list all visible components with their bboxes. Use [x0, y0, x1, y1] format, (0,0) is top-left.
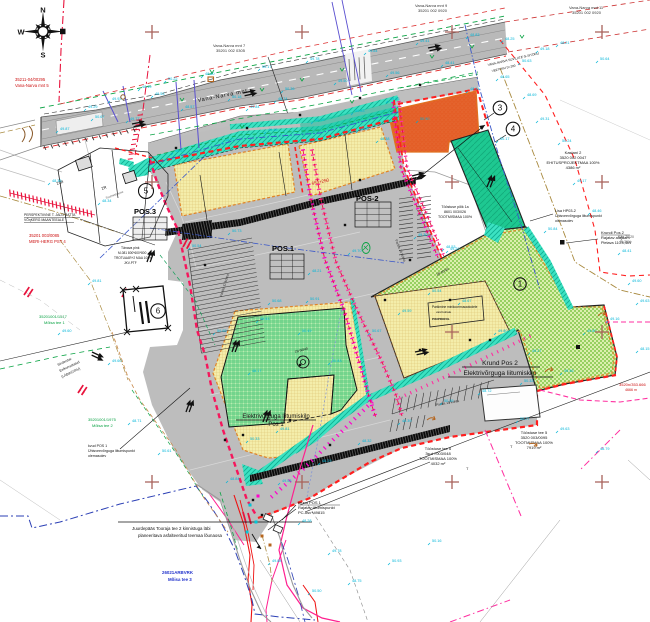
svg-text:50.27: 50.27 [520, 417, 530, 421]
svg-text:48.17: 48.17 [252, 369, 262, 373]
svg-text:50.17: 50.17 [262, 65, 272, 69]
svg-text:TROTUAAR+2 MAA 100%: TROTUAAR+2 MAA 100% [114, 256, 152, 260]
svg-text:48.15: 48.15 [640, 347, 650, 351]
svg-text:50.19: 50.19 [315, 118, 325, 122]
svg-text:50.63: 50.63 [522, 59, 532, 63]
svg-text:50.17: 50.17 [500, 137, 510, 141]
svg-text:49.17: 49.17 [577, 179, 587, 183]
svg-text:6: 6 [156, 307, 161, 316]
svg-text:3: 3 [498, 104, 503, 113]
svg-text:4: 4 [511, 125, 516, 134]
svg-text:PIKIPROFIIL: PIKIPROFIIL [432, 317, 450, 321]
svg-text:35201 002 0920: 35201 002 0920 [418, 8, 448, 13]
svg-text:50.83: 50.83 [332, 359, 342, 363]
svg-text:50.67: 50.67 [95, 115, 105, 119]
svg-text:POS.3: POS.3 [134, 207, 156, 216]
svg-text:50.49: 50.49 [302, 329, 312, 333]
svg-text:49.78: 49.78 [310, 57, 320, 61]
svg-text:49.59: 49.59 [402, 309, 412, 313]
svg-text:49.30: 49.30 [418, 233, 428, 237]
svg-text:49.84: 49.84 [368, 49, 378, 53]
svg-text:Elektrivõrguga liitumiskilp: Elektrivõrguga liitumiskilp [242, 414, 310, 420]
svg-text:POS.1: POS.1 [272, 244, 294, 253]
svg-text:49.80: 49.80 [498, 329, 508, 333]
svg-text:Mõisa tee 2: Mõisa tee 2 [92, 423, 113, 428]
svg-text:PERSPEKTIIVNE T. JALG RATTA: PERSPEKTIIVNE T. JALG RATTA [24, 213, 76, 217]
svg-text:49.87: 49.87 [60, 127, 70, 131]
svg-text:48.79: 48.79 [600, 447, 610, 451]
svg-text:50.64: 50.64 [600, 57, 610, 61]
svg-text:50.22: 50.22 [168, 77, 178, 81]
svg-text:Juurdepääs Tooraja tee 2 kinni: Juurdepääs Tooraja tee 2 kinnistuga läbi [132, 526, 211, 531]
svg-text:50.54: 50.54 [432, 289, 442, 293]
svg-text:Lisa HP03-2: Lisa HP03-2 [555, 209, 576, 213]
svg-text:MERI-HERG PST 4: MERI-HERG PST 4 [29, 239, 66, 244]
svg-text:35201 002 0305: 35201 002 0305 [216, 48, 246, 53]
svg-text:49.63: 49.63 [560, 427, 570, 431]
svg-text:49.63: 49.63 [640, 299, 650, 303]
svg-text:48.80: 48.80 [205, 72, 215, 76]
svg-text:50.33: 50.33 [524, 379, 534, 383]
svg-text:35201001/1517: 35201001/1517 [39, 314, 68, 319]
svg-text:50.93: 50.93 [392, 559, 402, 563]
svg-text:49.77: 49.77 [130, 117, 140, 121]
svg-text:Pl 39%: Pl 39% [620, 240, 631, 244]
svg-text:48.84: 48.84 [230, 477, 240, 481]
svg-text:50.68: 50.68 [272, 299, 282, 303]
svg-text:50.50: 50.50 [312, 589, 322, 593]
svg-text:48.67: 48.67 [462, 299, 472, 303]
svg-text:49.18: 49.18 [540, 47, 550, 51]
svg-text:49.46: 49.46 [564, 369, 574, 373]
svg-text:olemasolev: olemasolev [555, 219, 573, 223]
svg-text:35211-04/00295: 35211-04/00295 [15, 77, 46, 82]
svg-text:50.67: 50.67 [372, 329, 382, 333]
svg-text:50.24: 50.24 [562, 139, 572, 143]
svg-text:4666 m: 4666 m [625, 388, 637, 392]
svg-text:4032 m²: 4032 m² [431, 461, 446, 466]
svg-text:JKV-PTF: JKV-PTF [124, 261, 137, 265]
svg-text:50.95: 50.95 [217, 329, 227, 333]
svg-text:49.60: 49.60 [632, 279, 642, 283]
svg-text:48.57: 48.57 [185, 105, 195, 109]
svg-text:48.83: 48.83 [260, 317, 270, 321]
svg-text:50.33: 50.33 [250, 437, 260, 441]
svg-text:49.53: 49.53 [155, 92, 165, 96]
svg-text:Krund Pos 2: Krund Pos 2 [482, 360, 518, 367]
svg-text:49.88: 49.88 [272, 559, 282, 563]
svg-text:35201001/1975: 35201001/1975 [88, 417, 117, 422]
svg-text:49.41: 49.41 [420, 39, 430, 43]
svg-text:49.15: 49.15 [268, 128, 278, 132]
svg-text:50.73: 50.73 [232, 229, 242, 233]
svg-text:49.60: 49.60 [112, 359, 122, 363]
svg-text:49.31: 49.31 [540, 117, 550, 121]
svg-text:49.27: 49.27 [532, 349, 542, 353]
svg-text:49.84: 49.84 [250, 105, 260, 109]
svg-text:49.56: 49.56 [390, 71, 400, 75]
svg-text:35201 003/0085: 35201 003/0085 [29, 233, 60, 238]
svg-text:48.53: 48.53 [446, 245, 456, 249]
svg-text:48.72: 48.72 [225, 138, 235, 142]
svg-text:S: S [40, 51, 45, 60]
svg-text:Mõisa tee 3: Mõisa tee 3 [168, 577, 192, 582]
svg-text:Parkimine minikoormusautodele: Parkimine minikoormusautodele [432, 305, 478, 309]
svg-text:48.28: 48.28 [302, 519, 312, 523]
svg-text:vaid kohale: vaid kohale [436, 310, 452, 314]
svg-text:49.53: 49.53 [390, 97, 400, 101]
svg-text:5: 5 [144, 187, 149, 196]
svg-text:POS-2: POS-2 [356, 194, 379, 203]
svg-text:50.90: 50.90 [420, 117, 430, 121]
svg-text:planeeritava asfalteeritud tee: planeeritava asfalteeritud teemaa lõunao… [138, 533, 223, 538]
svg-text:49.16: 49.16 [610, 317, 620, 321]
svg-text:M-081 800*600*800: M-081 800*600*800 [118, 251, 147, 255]
svg-text:48.72: 48.72 [482, 389, 492, 393]
svg-text:48.21: 48.21 [312, 269, 322, 273]
svg-text:Tööstuse põik 1a: Tööstuse põik 1a [441, 205, 468, 209]
svg-text:48.19: 48.19 [142, 85, 152, 89]
svg-text:Tänava pink: Tänava pink [121, 246, 140, 250]
svg-text:48.14: 48.14 [470, 87, 480, 91]
svg-text:4386 m²: 4386 m² [566, 165, 581, 170]
svg-text:48.25: 48.25 [505, 37, 515, 41]
svg-text:35201 002 0920: 35201 002 0920 [572, 10, 602, 15]
svg-text:48.71: 48.71 [132, 419, 142, 423]
svg-text:Ühisveevõrguga liitumispunkt: Ühisveevõrguga liitumispunkt [555, 214, 602, 218]
svg-text:48.32: 48.32 [362, 439, 372, 443]
svg-text:50.54: 50.54 [192, 244, 202, 248]
svg-text:PC-osv+49815: PC-osv+49815 [298, 510, 325, 515]
svg-text:48.69: 48.69 [527, 93, 537, 97]
svg-text:49.50: 49.50 [338, 79, 348, 83]
svg-text:3520n/353.666: 3520n/353.666 [619, 382, 646, 387]
svg-text:50.83: 50.83 [355, 109, 365, 113]
svg-text:49.81: 49.81 [280, 427, 290, 431]
svg-text:Vana-Narva mnt 5: Vana-Narva mnt 5 [15, 83, 49, 88]
svg-text:48.46: 48.46 [592, 209, 602, 213]
svg-text:48.83: 48.83 [470, 33, 480, 37]
svg-text:48.21: 48.21 [560, 41, 570, 45]
svg-text:49.58: 49.58 [282, 479, 292, 483]
svg-text:49.81: 49.81 [92, 279, 102, 283]
svg-text:50.91: 50.91 [310, 297, 320, 301]
svg-text:49.78: 49.78 [332, 549, 342, 553]
svg-text:TOOTMISMAA 100%: TOOTMISMAA 100% [438, 215, 473, 219]
svg-text:48.41: 48.41 [622, 249, 632, 253]
svg-text:Elektrivõrguga liitumiskilp: Elektrivõrguga liitumiskilp [464, 370, 537, 377]
svg-text:48.38: 48.38 [380, 137, 390, 141]
svg-text:48.53: 48.53 [175, 149, 185, 153]
svg-text:50.84: 50.84 [548, 227, 558, 231]
svg-text:olemasolev: olemasolev [88, 454, 106, 458]
svg-text:kvud POS 1: kvud POS 1 [88, 444, 107, 448]
svg-text:Käe 26/20: Käe 26/20 [618, 235, 634, 239]
svg-text:50.61: 50.61 [162, 449, 172, 453]
svg-text:50.18: 50.18 [232, 95, 242, 99]
svg-text:50.16: 50.16 [432, 539, 442, 543]
svg-text:N: N [40, 6, 45, 15]
svg-text:48.74: 48.74 [278, 97, 288, 101]
svg-text:49.29: 49.29 [88, 105, 98, 109]
svg-text:1: 1 [518, 280, 523, 289]
svg-text:26021ARBVRK: 26021ARBVRK [162, 570, 194, 575]
svg-text:48.29: 48.29 [322, 459, 332, 463]
svg-text:8601 003/026: 8601 003/026 [444, 210, 466, 214]
svg-text:49.60: 49.60 [62, 329, 72, 333]
svg-text:48.65: 48.65 [500, 75, 510, 79]
svg-text:48.34: 48.34 [102, 199, 112, 203]
svg-text:48.36: 48.36 [52, 179, 62, 183]
svg-text:50.39: 50.39 [444, 399, 454, 403]
svg-text:48.82: 48.82 [360, 127, 370, 131]
svg-text:49.93: 49.93 [112, 97, 122, 101]
svg-text:50.36: 50.36 [285, 87, 295, 91]
svg-text:48.39: 48.39 [402, 419, 412, 423]
svg-text:48.75: 48.75 [352, 579, 362, 583]
svg-text:VÕƞKERG MAANTEEALE: VÕƞKERG MAANTEEALE [24, 217, 65, 222]
svg-text:W: W [17, 28, 25, 37]
svg-text:48.41: 48.41 [445, 61, 455, 65]
svg-text:49.70: 49.70 [352, 249, 362, 253]
svg-text:Mõisa tee 1: Mõisa tee 1 [44, 320, 65, 325]
svg-text:Ühisveevõrguga liitumispunkt: Ühisveevõrguga liitumispunkt [88, 449, 135, 453]
